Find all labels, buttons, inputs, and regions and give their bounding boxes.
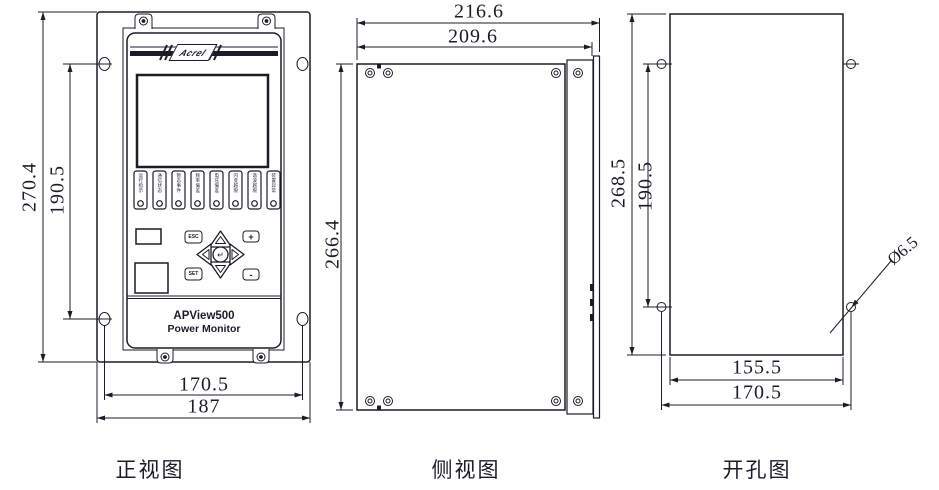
cutout-rectangle	[670, 14, 843, 355]
side-panel-plate-outline	[594, 56, 600, 418]
led-icon	[157, 201, 163, 207]
enter-button-icon: ↵	[217, 250, 224, 259]
hole-diameter-leader	[830, 261, 891, 333]
dim-front-hole-pitch-v: 190.5	[47, 165, 70, 215]
cutout-view-caption: 开孔图	[723, 454, 792, 484]
mounting-hole	[643, 60, 859, 312]
dim-side-body-depth: 209.6	[448, 26, 498, 49]
side-body-outline	[357, 64, 565, 410]
side-view-drawing	[336, 18, 600, 418]
plus-button-label: +	[248, 232, 253, 242]
led-indicator-strips	[134, 171, 280, 209]
dim-cutout-width: 155.5	[732, 357, 782, 380]
brand-logo-text: Acrel	[178, 48, 208, 58]
led-icon	[214, 201, 220, 207]
side-view-caption: 侧视图	[432, 454, 501, 484]
set-button-label: SET	[189, 271, 199, 277]
esc-button-label: ESC	[188, 234, 198, 240]
dim-side-overall-depth: 216.6	[454, 1, 504, 24]
drawing-linework	[0, 0, 939, 490]
minus-button-label: -	[250, 270, 253, 280]
indicator-window	[136, 229, 161, 244]
front-view-drawing	[38, 12, 310, 423]
led-indicator-label: 谐波越限	[252, 173, 257, 193]
dimension-front-hole-pitch-v	[63, 64, 112, 319]
device-subtitle-text: Power Monitor	[168, 323, 241, 335]
screw-icon	[366, 65, 583, 410]
dim-cutout-hole-pitch-v: 190.5	[635, 161, 658, 211]
led-indicator-label: 暂态事件	[176, 173, 181, 193]
dim-front-overall-width: 187	[188, 396, 221, 419]
dim-front-hole-pitch-h: 170.5	[179, 374, 229, 397]
led-icon	[252, 201, 258, 207]
led-indicator-label: 通信状态	[157, 173, 162, 193]
led-icon	[271, 201, 277, 207]
front-view-caption: 正视图	[116, 454, 185, 484]
lcd-screen	[137, 75, 268, 167]
led-icon	[176, 201, 182, 207]
led-icon	[138, 201, 144, 207]
side-front-cap-outline	[567, 60, 593, 414]
dim-side-body-height: 266.4	[322, 219, 345, 269]
led-indicator-label: 频率偏差	[195, 173, 200, 193]
led-indicator-label: 装置异常	[271, 173, 276, 193]
led-indicator-label: 运行指示	[138, 173, 143, 193]
led-indicator-label: 闪变越限	[233, 173, 238, 193]
indicator-window-large	[135, 263, 168, 293]
led-indicator-label: 电压偏差	[214, 173, 219, 193]
led-icon	[233, 201, 239, 207]
technical-drawing: 270.4 190.5 170.5 187 Acrel 运行指示 通信状态 暂态…	[0, 0, 939, 490]
device-model-text: APView500	[173, 310, 234, 322]
panel-clip	[590, 284, 593, 321]
cutout-view-drawing	[627, 14, 891, 410]
keypad	[127, 229, 281, 299]
dim-cutout-hole-pitch-h: 170.5	[732, 382, 782, 405]
dim-front-overall-height: 270.4	[19, 162, 42, 212]
led-icon	[195, 201, 201, 207]
dim-cutout-overall-height: 268.5	[608, 158, 631, 208]
